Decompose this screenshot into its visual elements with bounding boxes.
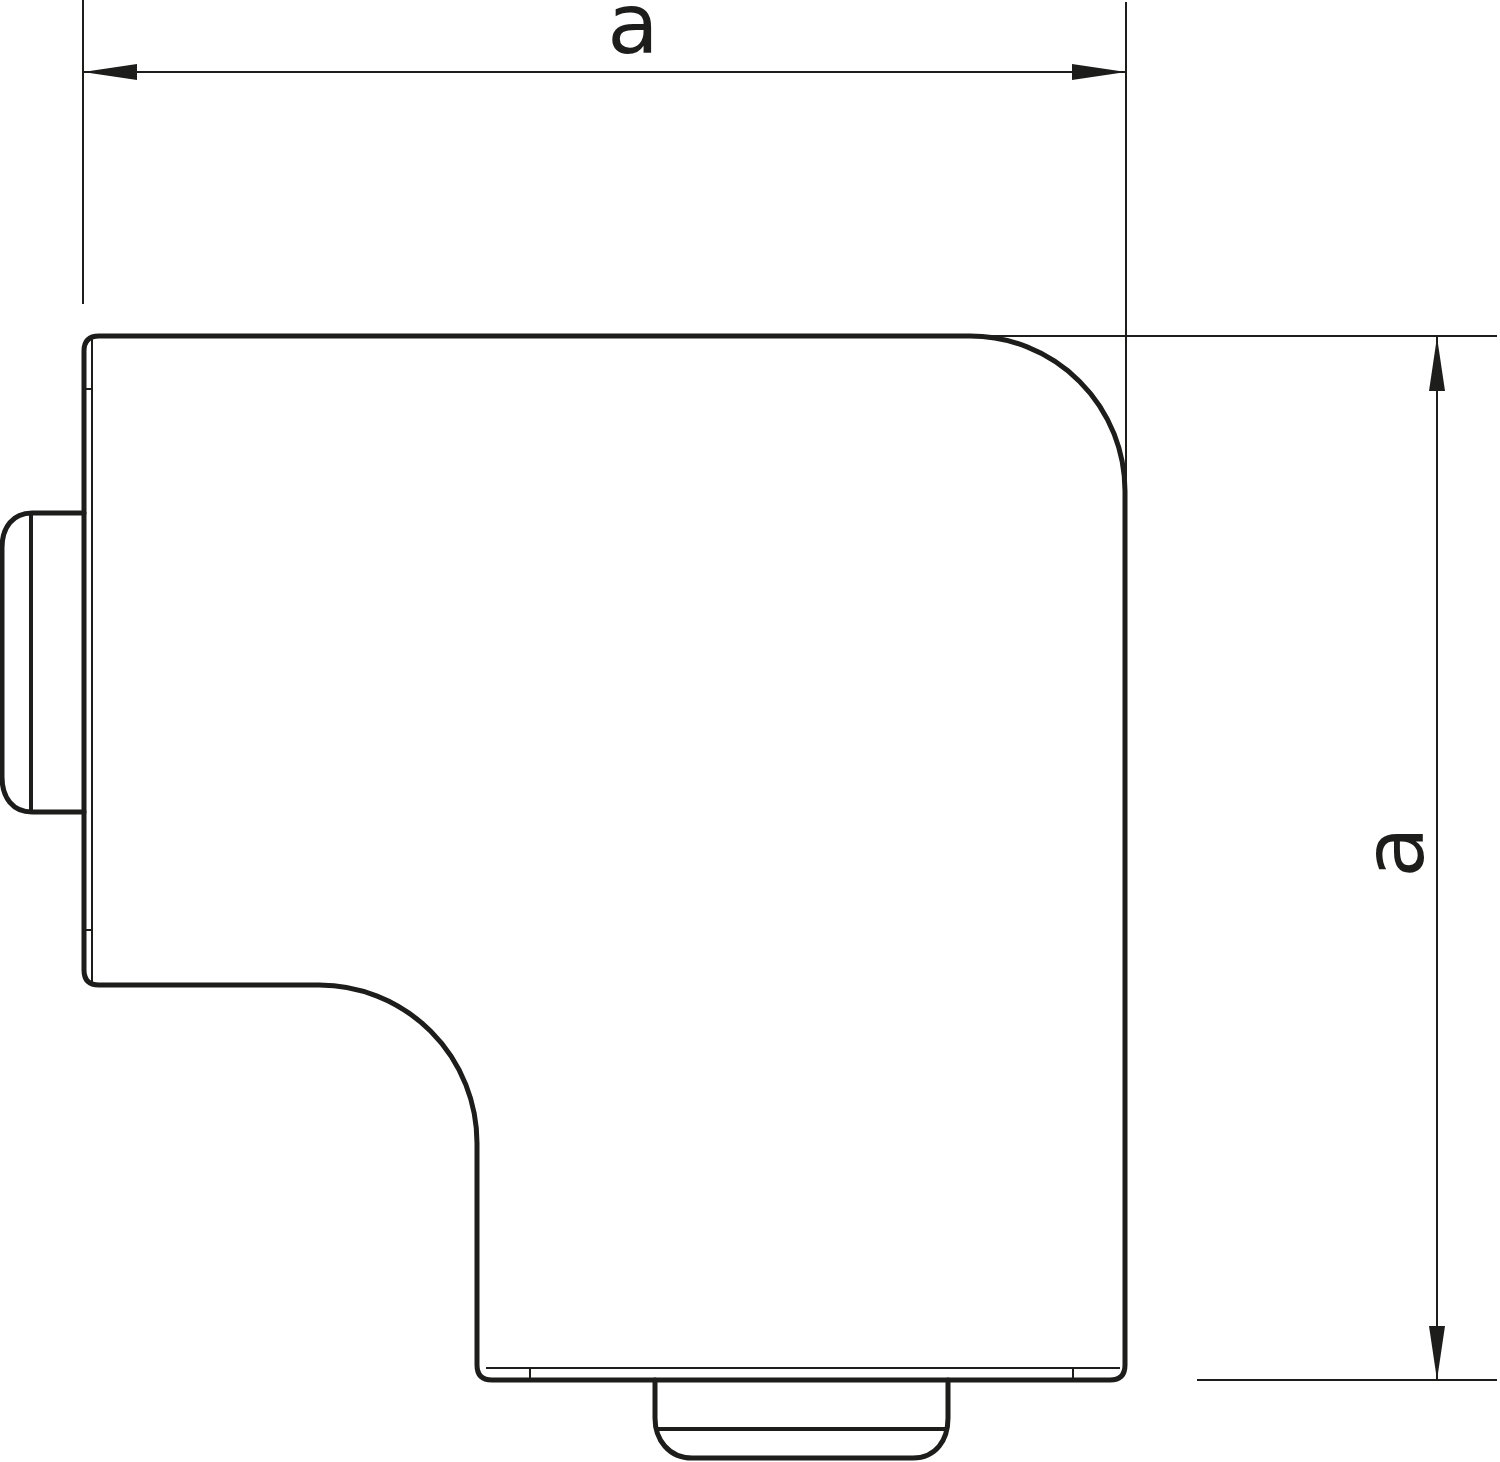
drawing-canvas: a a bbox=[0, 0, 1500, 1462]
width-dimension-label: a bbox=[607, 0, 658, 73]
height-arrowhead-bottom bbox=[1429, 1326, 1445, 1380]
width-arrowhead-left bbox=[83, 64, 137, 80]
flat-angle-part bbox=[2, 336, 1125, 1458]
bottom-connector-outline bbox=[655, 1380, 948, 1458]
part-body-outline bbox=[84, 336, 1125, 1380]
width-arrowhead-right bbox=[1072, 64, 1126, 80]
dimension-height: a bbox=[970, 336, 1497, 1380]
height-arrowhead-top bbox=[1429, 337, 1445, 391]
technical-drawing: a a bbox=[0, 0, 1500, 1462]
height-dimension-label: a bbox=[1345, 826, 1443, 877]
left-connector-outline bbox=[2, 513, 84, 812]
dimension-width: a bbox=[83, 0, 1126, 488]
